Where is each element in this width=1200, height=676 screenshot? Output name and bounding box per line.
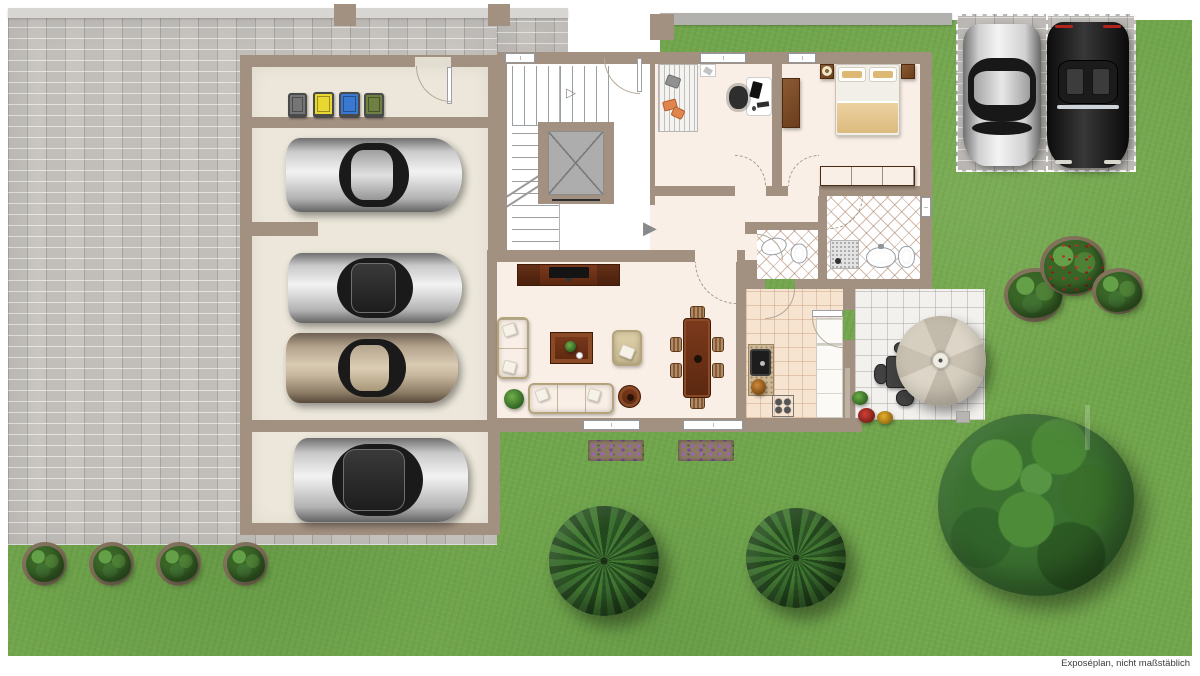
bed-pillow [838, 67, 866, 82]
bed-blanket [837, 101, 898, 133]
living-west-wall [487, 250, 497, 432]
house-east-wall [920, 52, 932, 287]
nightstand [901, 64, 915, 79]
office-chair [729, 86, 748, 109]
wc-left-wall-seg [745, 222, 757, 234]
cup [576, 352, 583, 359]
office-desk [746, 77, 772, 116]
kitchen-east-wall-seg [843, 279, 855, 310]
living-north-wall-seg [487, 250, 695, 262]
tv [549, 267, 589, 278]
side-table-round [618, 385, 641, 408]
patio-mat [956, 411, 970, 423]
car-cockpit [1058, 60, 1119, 104]
garage-car-bronze [286, 333, 458, 403]
sofa-left [497, 317, 529, 379]
dining-chair [670, 337, 682, 352]
car-windshield-frame [1057, 105, 1119, 109]
office-daybed [658, 64, 698, 132]
waste-bin-green [364, 93, 384, 118]
office-shelf [700, 64, 716, 77]
patio-plant-yellow [877, 411, 893, 424]
conifer-tree [746, 508, 846, 608]
living-north-wall-seg [737, 250, 745, 262]
apartment-entrance-icon: ▶ [643, 219, 657, 237]
refuse-room-wall [240, 117, 488, 128]
bathroom-toilet [898, 246, 915, 268]
living-window [683, 420, 743, 430]
waste-bin-grey [288, 93, 307, 118]
bedroom-wardrobe [782, 78, 800, 128]
faucet [878, 244, 884, 249]
shrub [1096, 272, 1142, 312]
bath-divider [818, 196, 827, 279]
large-tree [938, 414, 1134, 596]
garage-car-silver-sedan [288, 253, 462, 323]
fence-post [488, 4, 510, 26]
tv-sideboard [517, 264, 620, 286]
dining-chair [670, 363, 682, 378]
bedroom-dresser [820, 166, 915, 186]
bed-pillow [869, 67, 897, 82]
double-bed [835, 64, 900, 136]
illegible-watermark [845, 368, 850, 418]
sofa-pillow [502, 360, 518, 375]
hall-wall-seg [655, 186, 735, 196]
stove [772, 395, 794, 417]
floor-plant [504, 389, 524, 409]
stairwell-window [505, 53, 535, 63]
office-window [700, 53, 746, 63]
fence-post [650, 14, 674, 40]
patio-door-leaf [812, 310, 843, 317]
floor-plan: ▷ [0, 0, 1200, 676]
conifer-tree [549, 506, 659, 616]
taillight [1103, 25, 1121, 28]
wc-left-wall-seg [745, 260, 757, 279]
shower [830, 240, 859, 269]
stairs-direction-icon: ▷ [566, 86, 576, 99]
living-window [583, 420, 640, 430]
flowerbed [588, 440, 644, 461]
kitchen-bath-band-seg [795, 279, 932, 289]
hedge-ball [160, 546, 198, 582]
white-gap [568, 0, 660, 55]
hall-wall-seg [766, 186, 788, 196]
office-bedroom-divider [772, 64, 782, 186]
elevator-cab [548, 131, 604, 195]
waste-bin-yellow [313, 92, 334, 118]
centerpiece [694, 355, 702, 363]
dining-chair [712, 337, 724, 352]
patio-plant-green [852, 391, 868, 405]
bathroom-window [921, 197, 931, 217]
illegible-watermark [1085, 405, 1090, 450]
hall-wall-seg [819, 186, 920, 196]
car-seat [1092, 68, 1111, 96]
armchair-pillow [618, 344, 635, 360]
wc-toilet [791, 244, 808, 264]
shelf-object [703, 66, 713, 75]
wc-top-wall [757, 222, 818, 230]
car-silver-sedan [963, 24, 1041, 166]
shower-head [835, 258, 841, 264]
armchair [612, 330, 642, 366]
stairs-upper-flight [512, 66, 610, 126]
garage-car-silver-estate [294, 438, 468, 522]
hedge-ball [93, 546, 131, 582]
house-south-wall [487, 418, 862, 432]
garage-divider-wall [240, 420, 500, 432]
car-windshield [972, 121, 1031, 135]
headlight [1104, 160, 1120, 164]
sofa-pillow [587, 388, 602, 403]
kitchen-cabinets [816, 344, 843, 418]
car-roof [974, 71, 1030, 105]
bathroom-sink [866, 247, 896, 268]
bedroom-window [788, 53, 816, 63]
table-plant [565, 341, 576, 352]
headlight [1055, 160, 1071, 164]
umbrella-pole [932, 352, 949, 369]
dining-chair [712, 363, 724, 378]
car-roof [343, 449, 406, 511]
patio-plant-red [858, 408, 875, 423]
taillight [1055, 25, 1073, 28]
mouse [752, 106, 756, 111]
laptop [749, 81, 763, 99]
car-black-convertible [1047, 22, 1129, 168]
sofa-pillow [534, 387, 549, 402]
plan-caption: Exposéplan, nicht maßstäblich [820, 658, 1190, 674]
boundary-fence-left [8, 8, 568, 18]
garage-wall-stub [240, 222, 318, 236]
elevator-door-line [552, 199, 600, 201]
keyboard [757, 101, 770, 108]
tv-stand [566, 278, 572, 281]
kitchen-faucet [760, 361, 765, 366]
kitchen-sink [750, 349, 771, 376]
flowerbed [678, 440, 734, 461]
sofa-pillow [501, 322, 517, 337]
coffee-table [550, 332, 593, 364]
dining-table [683, 318, 711, 398]
boundary-fence-mid [660, 13, 952, 25]
car-panoramic-roof [351, 263, 396, 313]
car-roof [351, 150, 393, 200]
side-table-center [627, 394, 634, 401]
bedside-lamp [822, 66, 832, 76]
living-kitchen-divider [736, 262, 746, 418]
kitchen-plant [751, 379, 766, 395]
hedge-ball [26, 546, 64, 582]
car-roof [350, 345, 390, 391]
sofa-bottom [528, 383, 614, 414]
waste-bin-blue [339, 92, 360, 118]
car-seat [1066, 68, 1085, 96]
hedge-ball [227, 546, 265, 582]
fence-post [334, 4, 356, 26]
garage-car-silver-hatchback [286, 138, 462, 212]
